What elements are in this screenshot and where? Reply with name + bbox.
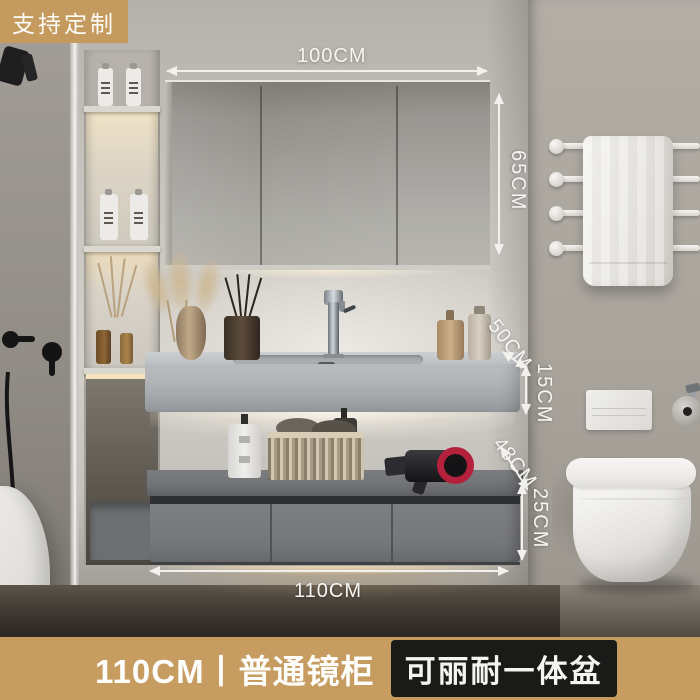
shelf-board [84,246,160,252]
mirror-door-seam [396,86,398,268]
towel-bar-mount [549,206,564,221]
arrowhead-icon [494,244,504,255]
amber-bottle [96,330,111,364]
drawer-seam [391,504,393,562]
integrated-basin-counter [145,352,520,412]
mirror-cabinet [165,80,490,270]
bottle-label [134,212,143,226]
arrowhead-icon [517,483,527,494]
arrowhead-icon [149,566,160,576]
bottom-banner: 110CM丨普通镜柜 可丽耐一体盆 [0,637,700,700]
shower-glass-edge [70,0,79,612]
hair-dryer [385,444,471,486]
towel-hem [589,262,667,264]
banner-basin-badge: 可丽耐一体盆 [391,640,617,697]
shower-mixer-stem [49,358,55,376]
arrowhead-icon [494,93,504,104]
dimension-label-cabinet-height: 25CM [530,488,550,549]
width-arrow-icon [167,70,487,72]
reed-diffuser-bottle [224,316,260,360]
towel-bar-mount [549,172,564,187]
height-arrow-icon [498,94,500,254]
arrowhead-icon [521,404,531,415]
toilet-seat [566,458,696,488]
dispenser-label [239,456,250,463]
vase [176,306,206,360]
bottle-cap [130,63,137,69]
arrowhead-icon [166,66,177,76]
cabinet-drawers [150,504,520,562]
mirror-cabinet-side [165,82,172,270]
toiletry-bottle [126,68,141,106]
toilet-paper-core [683,407,692,416]
dimension-label-mirror-width: 100CM [297,46,366,66]
bottle-label [104,212,113,226]
wall-hung-toilet [573,480,691,582]
flush-plate-line [592,415,646,416]
lotion-bottle [437,320,464,360]
hair-dryer-ring [437,447,474,484]
flush-plate-line [592,408,646,409]
arrowhead-icon [517,550,527,561]
towel-bar-mount [549,139,564,154]
hanging-towel [583,136,673,286]
cabinet-recess-gap [150,496,520,504]
faucet-base [323,354,344,358]
soap-dispenser [228,424,261,478]
toiletry-bottle [98,68,113,106]
bathroom-product-photo: 100CM 65CM 50CM 15CM 48CM 25CM 110CM 支持定… [0,0,700,700]
drawer-seam [270,504,272,562]
faucet [328,302,339,356]
shower-mixer-spout [15,336,35,342]
lotion-bottle [468,314,491,360]
cabinet-bottom-edge [150,562,520,565]
dimension-label-vanity-width: 110CM [294,581,362,601]
toilet-seat-seam [579,498,685,500]
dimension-label-mirror-height: 65CM [508,150,528,211]
woven-basket [268,432,364,480]
dispenser-label [239,436,250,443]
height-arrow-icon [525,366,527,414]
toiletry-bottle [130,194,148,240]
bottle-cap [102,63,109,69]
arrowhead-icon [477,66,488,76]
bottle-label [101,82,110,96]
shelf-board [84,106,160,112]
mirror-reflection [165,82,490,270]
banner-size-text: 110CM丨普通镜柜 [95,645,375,693]
toiletry-bottle [100,194,118,240]
towel-bar-mount [549,241,564,256]
arrowhead-icon [521,365,531,376]
customize-badge: 支持定制 [0,0,128,43]
height-arrow-icon [521,484,523,560]
flush-plate [586,390,652,430]
bottle-cap [135,189,142,195]
counter-front-face [145,364,520,412]
amber-bottle [120,333,133,364]
bottle-cap [105,189,112,195]
bottle-label [129,82,138,96]
width-arrow-icon [150,570,508,572]
dimension-label-counter-height: 15CM [534,363,554,424]
mirror-door-seam [260,86,262,268]
arrowhead-icon [498,566,509,576]
basket-weave [268,438,364,480]
